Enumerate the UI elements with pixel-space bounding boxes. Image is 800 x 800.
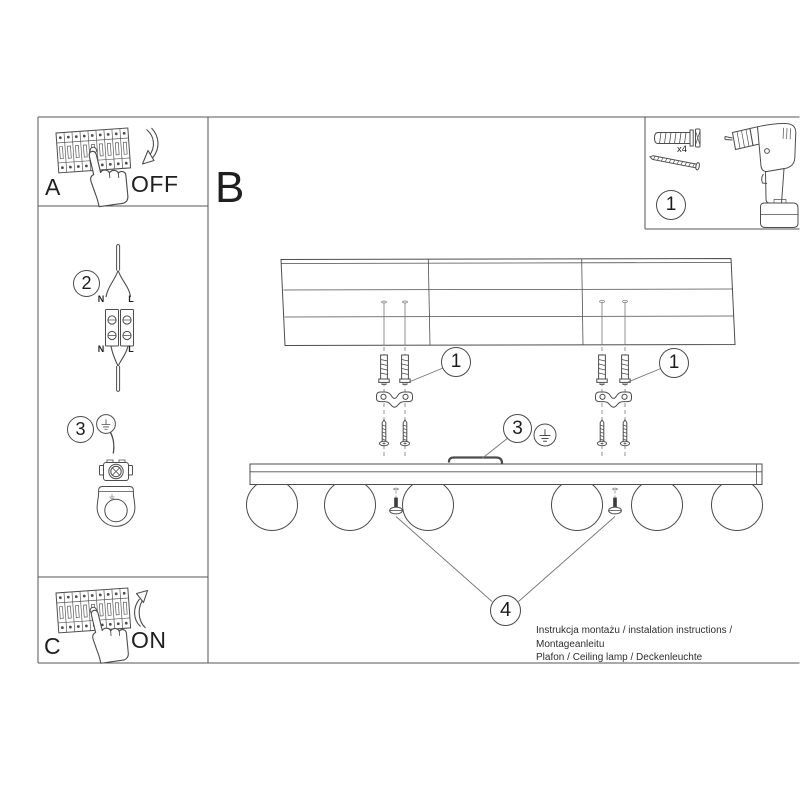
wire-label-l-top: L <box>125 295 137 304</box>
terminal-block-illustration <box>106 245 134 392</box>
ground-clamp-illustration <box>97 415 135 527</box>
mounting-bracket-icon <box>377 392 413 407</box>
anchor-assembly-left <box>377 347 444 456</box>
wall-plug-icon <box>597 355 607 385</box>
canopy-bracket-illustration <box>97 487 135 527</box>
callout-1-right: 1 <box>659 348 689 378</box>
instruction-sheet: A OFF B C ON x4 N L N L 1 2 3 1 1 3 4 In… <box>0 0 800 800</box>
panel-c-label: C <box>44 635 61 658</box>
callout-leader <box>482 438 509 459</box>
callout-leader <box>628 368 662 382</box>
screw-icon <box>400 420 409 446</box>
screw-icon <box>649 153 700 170</box>
on-label: ON <box>131 629 167 652</box>
ground-wire <box>449 458 502 465</box>
callout-4-globes: 4 <box>490 595 521 626</box>
wire-label-n-bottom: N <box>95 345 107 354</box>
ceiling-illustration <box>281 259 735 346</box>
panel-a-label: A <box>45 176 60 199</box>
ceiling-lamp-illustration <box>247 424 763 602</box>
lamp-globes <box>247 480 763 531</box>
drill-icon <box>725 123 798 227</box>
callout-1-left: 1 <box>441 347 471 377</box>
footer-line-1: Instrukcja montażu / instalation instruc… <box>536 624 800 651</box>
callout-2-wiring: 2 <box>73 270 100 297</box>
line-art <box>0 0 800 800</box>
sheet-frame <box>38 117 800 663</box>
arrow-down-icon <box>143 128 159 164</box>
globe-screw-left <box>390 488 403 514</box>
mounting-bracket-icon <box>596 392 632 407</box>
callout-1-parts: 1 <box>656 190 686 220</box>
screw-icon <box>597 420 606 446</box>
anchor-assembly-right <box>596 347 663 456</box>
arrow-up-icon <box>135 591 148 629</box>
wall-plug-icon <box>379 355 389 385</box>
wall-plug-icon <box>400 355 410 385</box>
screw-icon <box>620 420 629 446</box>
wire-label-l-bottom: L <box>125 345 137 354</box>
footer-caption: Instrukcja montażu / instalation instruc… <box>536 624 800 665</box>
anchor-quantity-label: x4 <box>671 145 693 155</box>
callout-leader <box>409 368 443 382</box>
callout-3-ground: 3 <box>503 414 532 443</box>
wall-plug-icon <box>620 355 630 385</box>
screw-icon <box>379 420 388 446</box>
lamp-rail <box>250 464 762 485</box>
callout-3-ground-step: 3 <box>67 416 94 443</box>
section-b-label: B <box>215 166 244 210</box>
globe-screw-right <box>609 488 622 514</box>
footer-line-2: Plafon / Ceiling lamp / Deckenleuchte <box>536 651 800 665</box>
off-label: OFF <box>131 173 179 196</box>
wire-label-n-top: N <box>95 295 107 304</box>
